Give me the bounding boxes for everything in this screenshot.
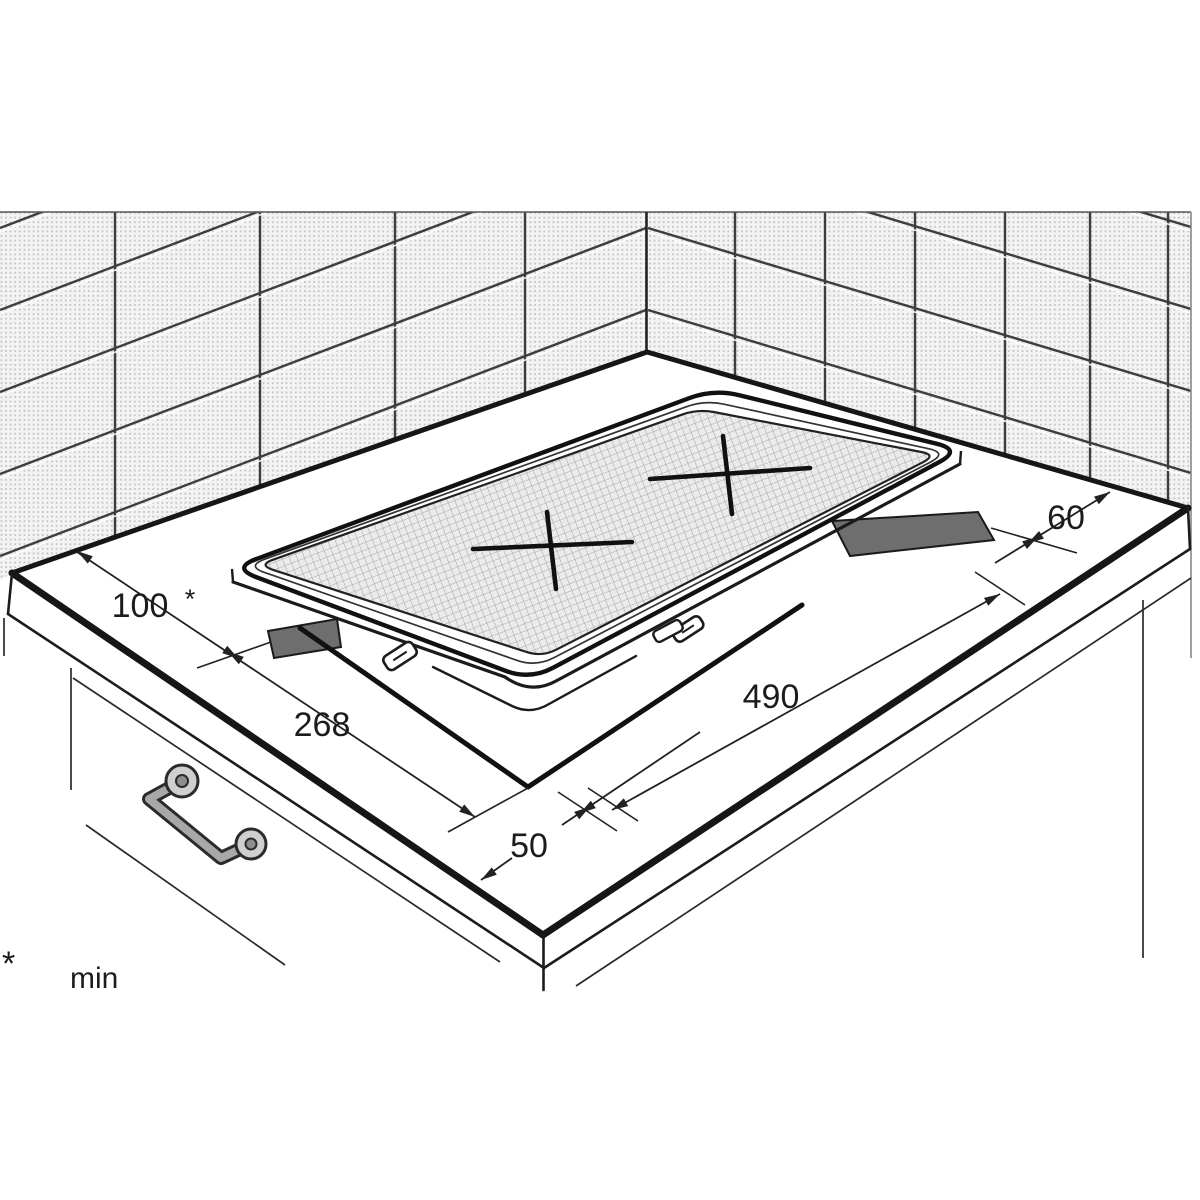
footnote-text: min bbox=[70, 962, 118, 995]
label-50: 50 bbox=[510, 827, 548, 865]
footnote-asterisk: * bbox=[2, 945, 15, 983]
label-490: 490 bbox=[743, 678, 800, 716]
drawer-handle bbox=[149, 765, 266, 859]
label-100-asterisk: * bbox=[185, 584, 196, 614]
label-268: 268 bbox=[294, 706, 351, 744]
footnote: * min bbox=[2, 945, 118, 995]
diagram-canvas: 100 * 268 490 50 60 * min bbox=[0, 0, 1200, 1200]
hob-installation-diagram: 100 * 268 490 50 60 * min bbox=[0, 0, 1200, 1200]
label-100: 100 bbox=[112, 587, 169, 625]
label-60: 60 bbox=[1047, 499, 1085, 537]
